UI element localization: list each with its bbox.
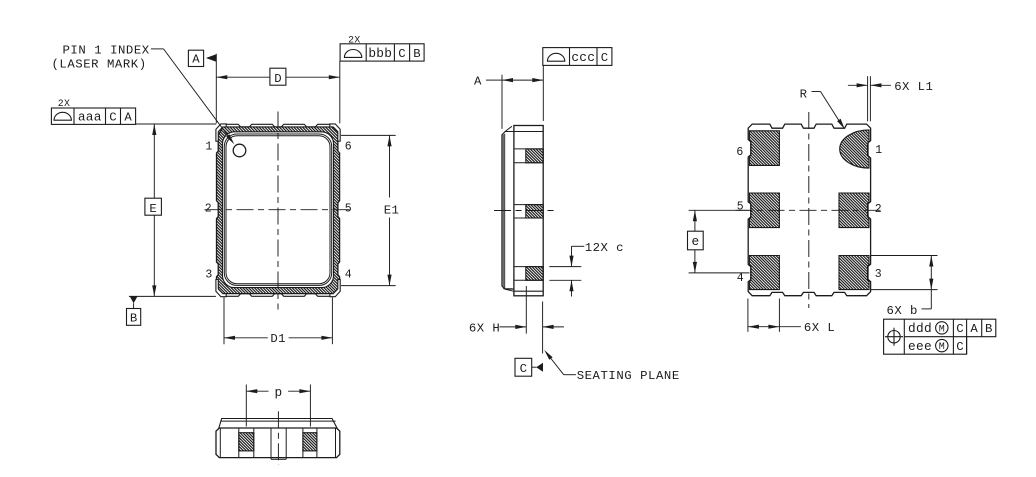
svg-text:ccc: ccc [571,50,595,65]
svg-text:C: C [398,47,405,61]
svg-text:SEATING PLANE: SEATING PLANE [577,369,680,383]
svg-text:5: 5 [737,200,744,213]
svg-text:D: D [274,72,281,86]
svg-text:3: 3 [875,268,882,281]
svg-text:PIN 1 INDEX: PIN 1 INDEX [63,44,150,58]
svg-text:eee: eee [908,339,932,354]
svg-text:aaa: aaa [78,110,102,125]
svg-text:C: C [109,111,116,125]
svg-text:4: 4 [737,272,744,285]
svg-text:ddd: ddd [908,321,932,336]
svg-text:(LASER MARK): (LASER MARK) [52,57,147,71]
svg-text:2: 2 [875,203,882,216]
svg-text:A: A [192,53,200,67]
svg-text:B: B [985,322,992,336]
svg-text:p: p [274,385,282,400]
svg-text:A: A [970,322,978,336]
svg-text:2: 2 [205,203,212,216]
svg-text:M: M [939,342,945,353]
svg-text:1: 1 [205,140,212,153]
svg-text:B: B [413,47,420,61]
svg-text:4: 4 [345,268,352,281]
svg-text:3: 3 [205,268,212,281]
svg-text:5: 5 [345,203,352,216]
svg-text:12X c: 12X c [585,241,624,255]
svg-text:B: B [130,311,137,325]
svg-text:D1: D1 [270,332,286,346]
svg-text:M: M [939,325,945,336]
svg-text:6X H: 6X H [469,321,500,335]
svg-text:E1: E1 [384,204,400,218]
svg-text:C: C [956,322,963,336]
svg-text:C: C [601,51,608,65]
svg-text:bbb: bbb [368,46,392,61]
svg-text:C: C [956,340,963,354]
svg-text:1: 1 [875,144,882,157]
svg-text:e: e [691,234,699,249]
svg-text:6X L1: 6X L1 [894,80,933,94]
svg-text:R: R [800,88,808,102]
svg-text:E: E [149,202,156,216]
svg-text:6X L: 6X L [804,321,835,335]
svg-text:6: 6 [736,146,743,159]
svg-text:A: A [124,111,132,125]
svg-text:C: C [520,362,527,376]
svg-text:6X b: 6X b [887,304,918,318]
svg-text:A: A [474,75,482,89]
svg-text:6: 6 [345,140,352,153]
